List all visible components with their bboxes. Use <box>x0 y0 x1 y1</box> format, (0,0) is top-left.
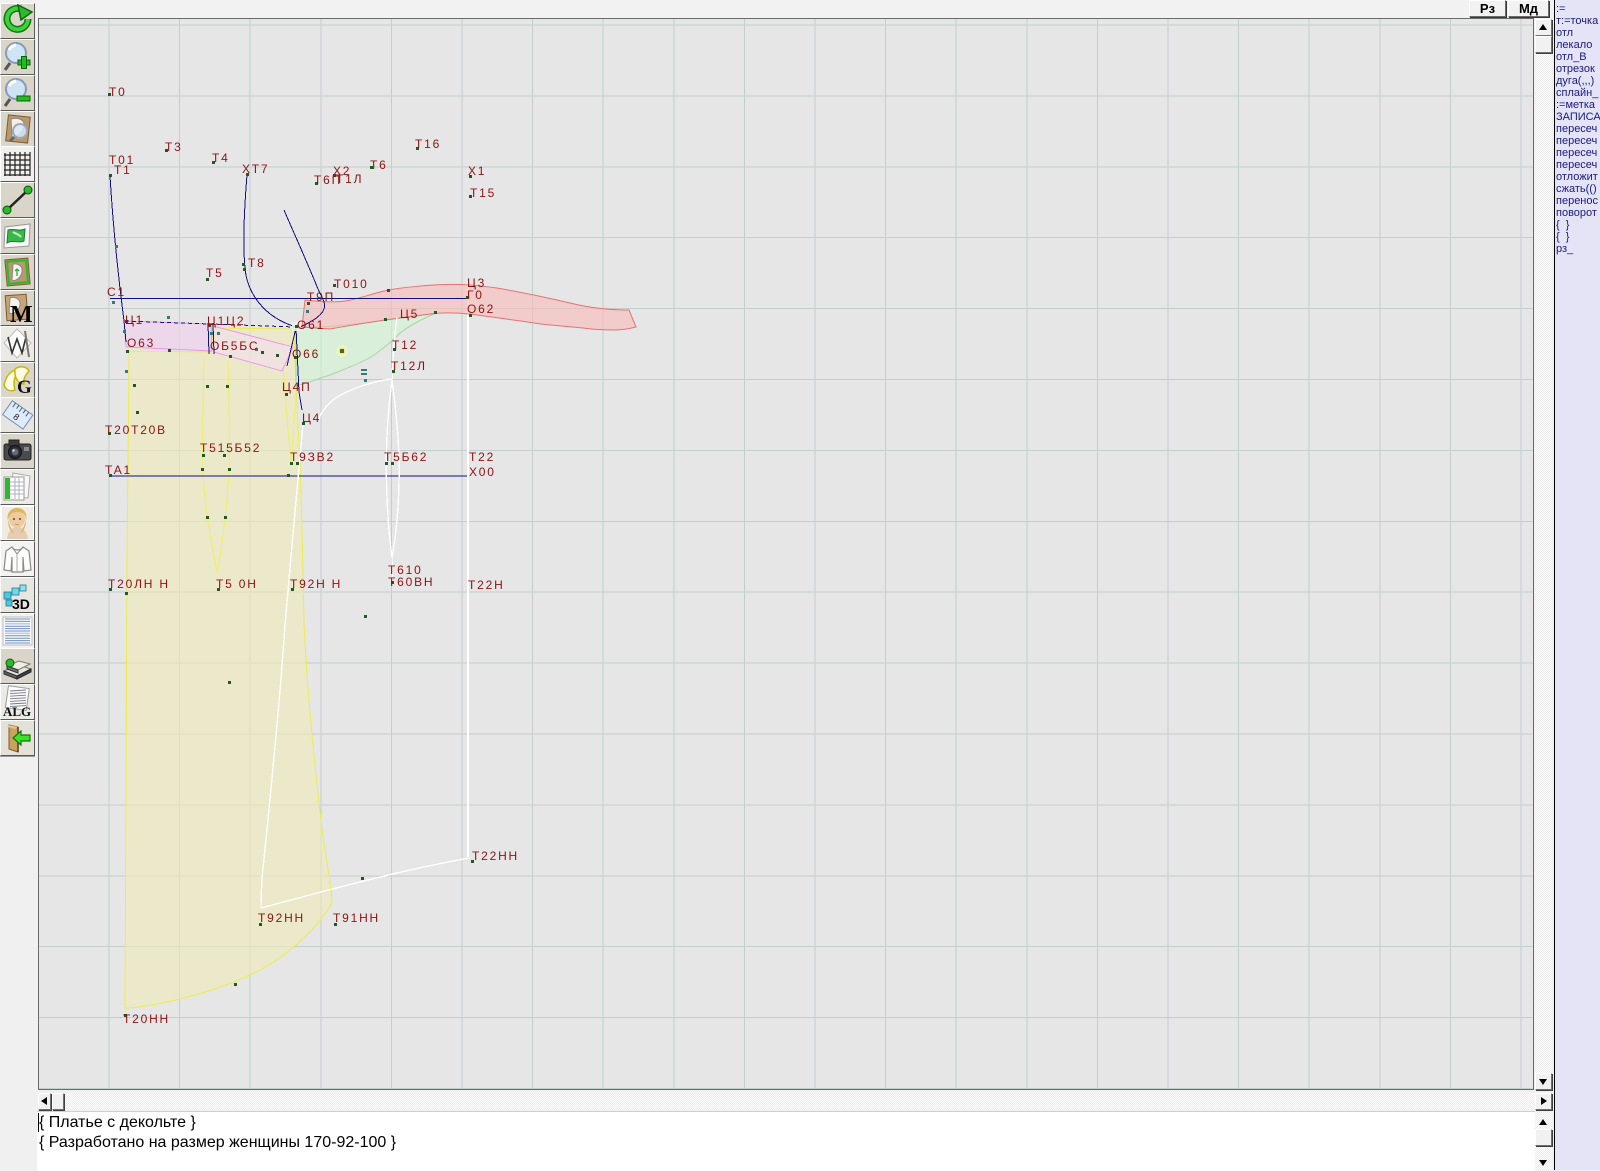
svg-text:Т92Н Н: Т92Н Н <box>290 577 342 591</box>
svg-text:Т22Н: Т22Н <box>468 578 505 592</box>
svg-text:Ц5: Ц5 <box>400 307 419 321</box>
svg-text:Т010: Т010 <box>334 277 369 291</box>
svg-text:ХТ7: ХТ7 <box>242 162 269 176</box>
svg-text:ОБ5БС: ОБ5БС <box>210 339 259 353</box>
svg-text:Т12: Т12 <box>392 338 418 352</box>
svg-text:Т3: Т3 <box>165 140 183 154</box>
svg-text:Т22НН: Т22НН <box>472 849 519 863</box>
svg-text:Т4: Т4 <box>212 151 230 165</box>
svg-text:Т91НН: Т91НН <box>333 911 380 925</box>
svg-text:О61: О61 <box>297 318 325 332</box>
svg-text:О66: О66 <box>292 347 320 361</box>
svg-text:Ц1Ц2: Ц1Ц2 <box>207 314 245 328</box>
svg-text:Т22: Т22 <box>469 450 495 464</box>
svg-text:С1: С1 <box>107 285 126 299</box>
svg-text:Т5Б62: Т5Б62 <box>384 450 428 464</box>
svg-text:Т20Т20В: Т20Т20В <box>105 423 167 437</box>
svg-text:ТА1: ТА1 <box>105 463 132 477</box>
svg-text:Х00: Х00 <box>469 465 496 479</box>
svg-text:3D: 3D <box>12 596 30 612</box>
svg-text:Т15: Т15 <box>470 186 496 200</box>
svg-text:Т9ЗВ2: Т9ЗВ2 <box>290 450 335 464</box>
svg-text:О63: О63 <box>127 336 155 350</box>
svg-text:Т20ЛН Н: Т20ЛН Н <box>108 577 170 591</box>
svg-text:Т60ВН: Т60ВН <box>388 575 434 589</box>
svg-text:О62: О62 <box>467 302 495 316</box>
svg-text:Т0: Т0 <box>109 85 127 99</box>
svg-text:Т16: Т16 <box>415 137 441 151</box>
svg-text:Т20НН: Т20НН <box>123 1012 170 1026</box>
svg-text:Х1: Х1 <box>468 164 486 178</box>
svg-text:Х2: Х2 <box>333 164 351 178</box>
svg-text:Т5 0Н: Т5 0Н <box>216 577 258 591</box>
svg-text:Т515Б52: Т515Б52 <box>200 441 261 455</box>
svg-text:Т9П: Т9П <box>307 290 335 304</box>
svg-text:Т1: Т1 <box>114 163 132 177</box>
svg-text:Г0: Г0 <box>467 288 484 302</box>
svg-text:Ц1: Ц1 <box>125 313 144 327</box>
svg-text:Т6: Т6 <box>370 158 388 172</box>
svg-text:Т5: Т5 <box>206 266 224 280</box>
svg-text:Т8: Т8 <box>248 256 266 270</box>
svg-text:M: M <box>10 302 33 325</box>
svg-text:Т92НН: Т92НН <box>258 911 305 925</box>
svg-text:ALG: ALG <box>3 704 31 719</box>
svg-text:Ц4: Ц4 <box>302 411 321 425</box>
svg-text:Т12Л: Т12Л <box>391 359 427 373</box>
svg-text:Ц4П: Ц4П <box>282 380 312 394</box>
svg-text:G: G <box>17 377 32 397</box>
